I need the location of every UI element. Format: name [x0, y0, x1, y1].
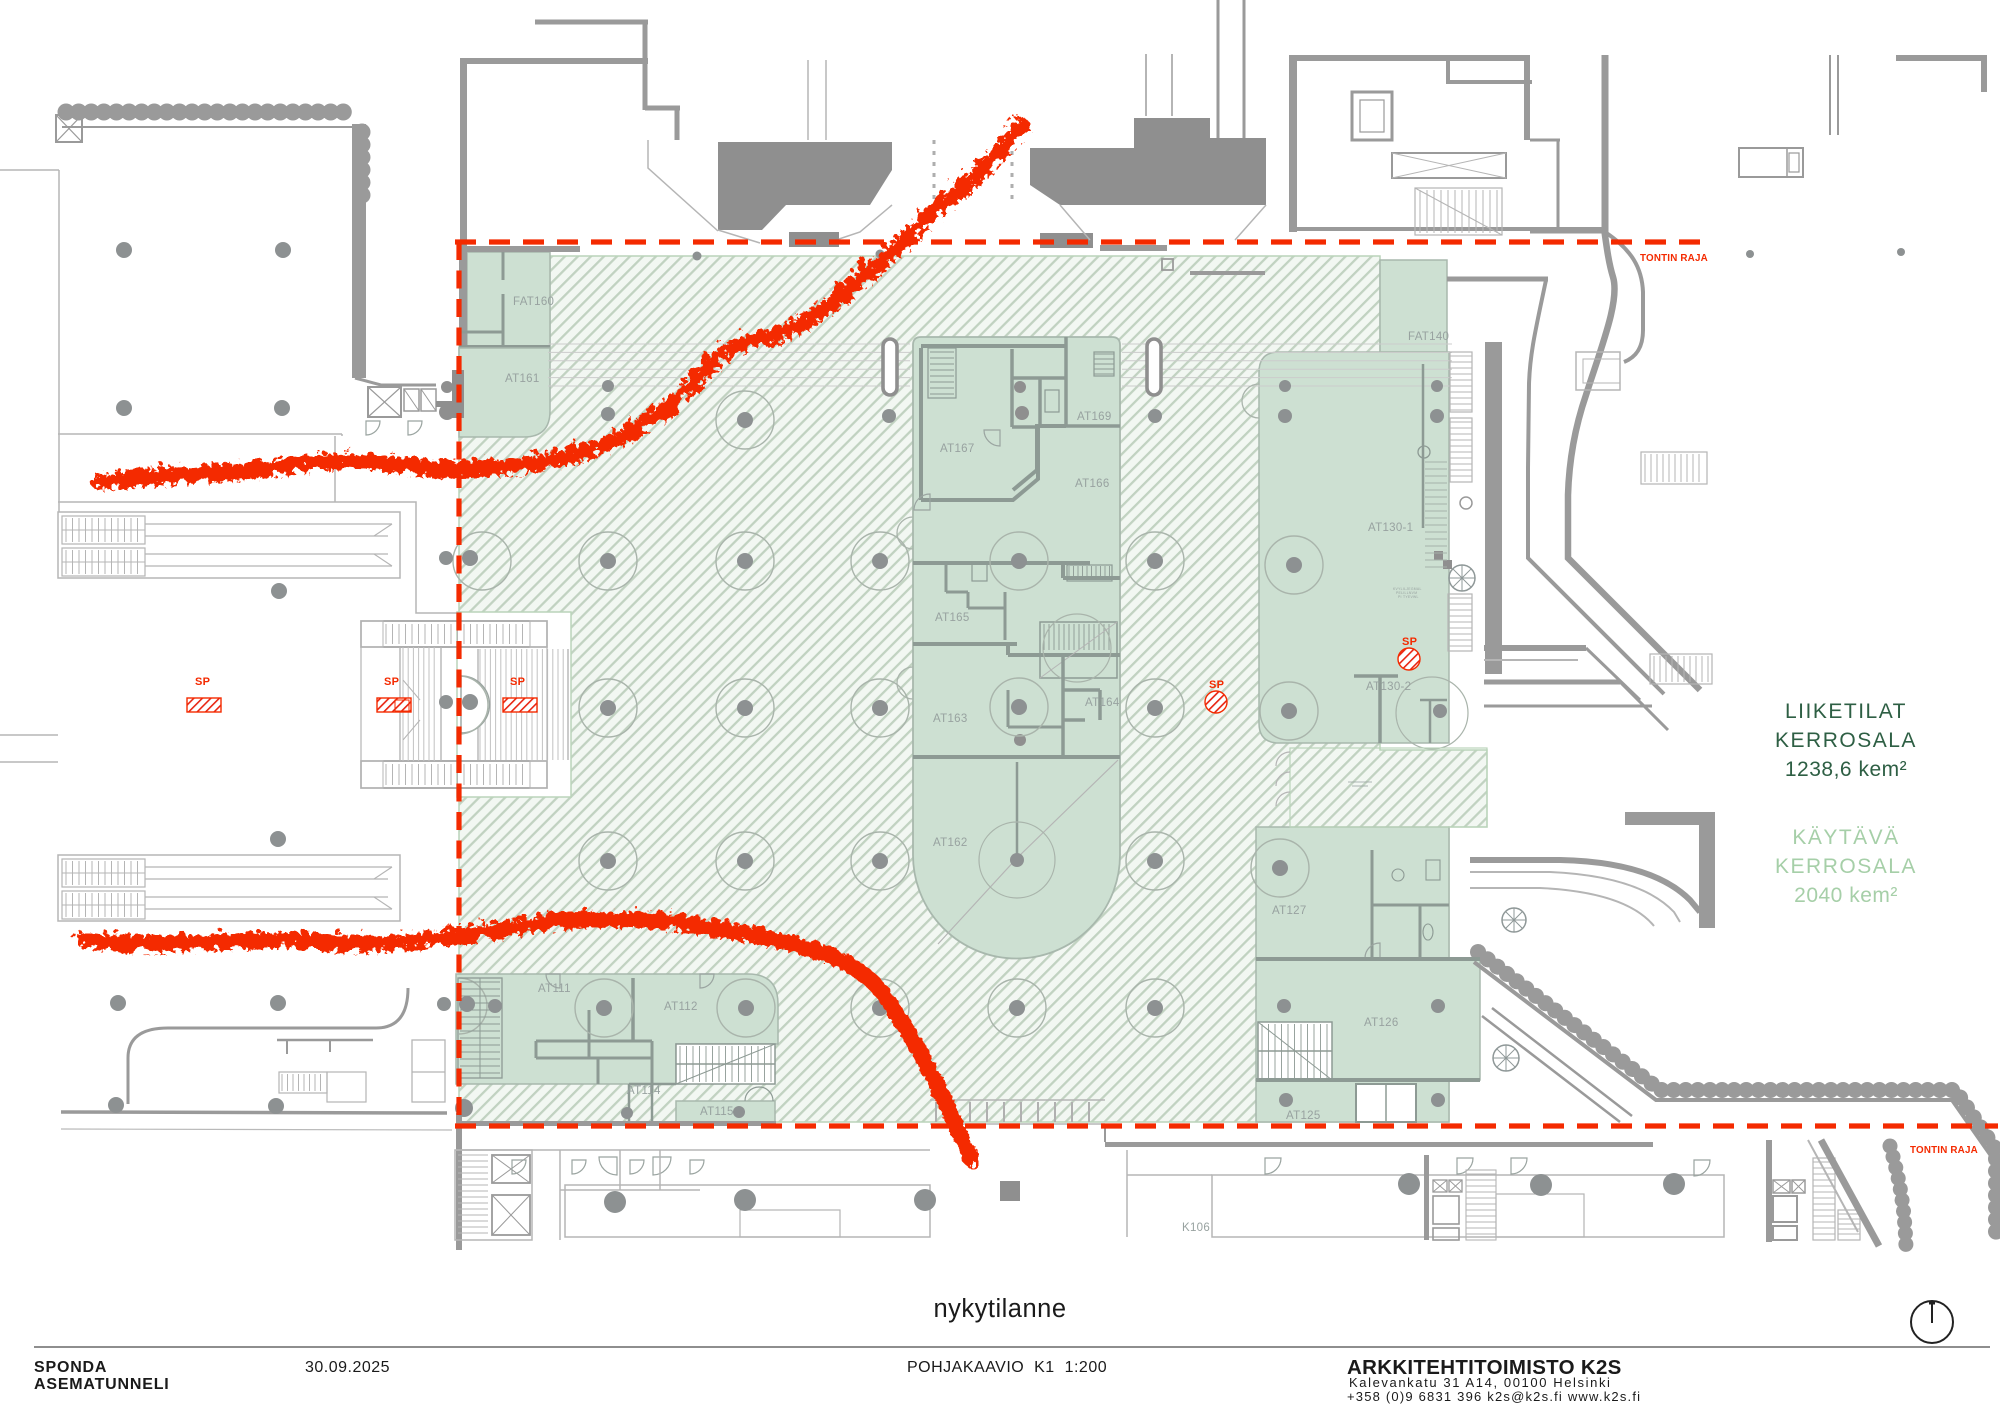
svg-text:Kalevankatu 31 A14, 00100 Hels: Kalevankatu 31 A14, 00100 Helsinki	[1349, 1375, 1612, 1390]
svg-text:SP: SP	[1402, 636, 1417, 648]
svg-text:AT111: AT111	[538, 983, 571, 995]
svg-text:TONTIN RAJA: TONTIN RAJA	[1640, 253, 1708, 264]
svg-text:SP: SP	[510, 676, 525, 688]
svg-text:nykytilanne: nykytilanne	[933, 1295, 1066, 1323]
svg-text:ASEMATUNNELI: ASEMATUNNELI	[34, 1376, 170, 1393]
svg-text:30.09.2025: 30.09.2025	[305, 1359, 390, 1376]
svg-text:PI TYEVWL: PI TYEVWL	[1398, 595, 1419, 599]
svg-text:TONTIN RAJA: TONTIN RAJA	[1910, 1145, 1978, 1156]
svg-text:AT166: AT166	[1075, 478, 1110, 490]
svg-text:SPONDA: SPONDA	[34, 1359, 107, 1376]
svg-text:K106: K106	[1182, 1222, 1210, 1234]
svg-text:POHJAKAAVIO K1 1:200: POHJAKAAVIO K1 1:200	[907, 1359, 1107, 1376]
svg-text:FAT160: FAT160	[513, 296, 554, 308]
svg-text:AT130-1: AT130-1	[1368, 522, 1413, 534]
svg-text:AT125: AT125	[1286, 1110, 1321, 1122]
svg-text:LIIKETILAT: LIIKETILAT	[1785, 700, 1907, 723]
svg-text:KÄYTÄVÄ: KÄYTÄVÄ	[1792, 826, 1899, 849]
svg-text:1238,6 kem²: 1238,6 kem²	[1785, 758, 1907, 781]
svg-text:KERROSALA: KERROSALA	[1775, 729, 1917, 752]
svg-text:SP: SP	[195, 676, 210, 688]
svg-text:AT164: AT164	[1085, 697, 1120, 709]
svg-text:2040 kem²: 2040 kem²	[1794, 884, 1898, 907]
svg-text:AT169: AT169	[1077, 411, 1112, 423]
svg-text:AT161: AT161	[505, 373, 540, 385]
svg-text:SP: SP	[384, 676, 399, 688]
svg-text:AT163: AT163	[933, 713, 968, 725]
svg-text:AT167: AT167	[940, 443, 975, 455]
svg-text:SP: SP	[1209, 679, 1224, 691]
svg-text:AT126: AT126	[1364, 1017, 1399, 1029]
svg-text:AT162: AT162	[933, 837, 968, 849]
svg-text:AT130-2: AT130-2	[1366, 681, 1411, 693]
svg-text:FAT140: FAT140	[1408, 331, 1449, 343]
svg-text:KERROSALA: KERROSALA	[1775, 855, 1917, 878]
svg-text:+358 (0)9 6831 396 k2s@k2s.fi: +358 (0)9 6831 396 k2s@k2s.fi www.k2s.fi	[1347, 1389, 1641, 1404]
svg-text:AT114: AT114	[627, 1085, 661, 1097]
svg-text:AT165: AT165	[935, 612, 970, 624]
svg-text:AT115: AT115	[700, 1106, 734, 1118]
svg-text:AT127: AT127	[1272, 905, 1307, 917]
svg-text:AT112: AT112	[664, 1001, 698, 1013]
